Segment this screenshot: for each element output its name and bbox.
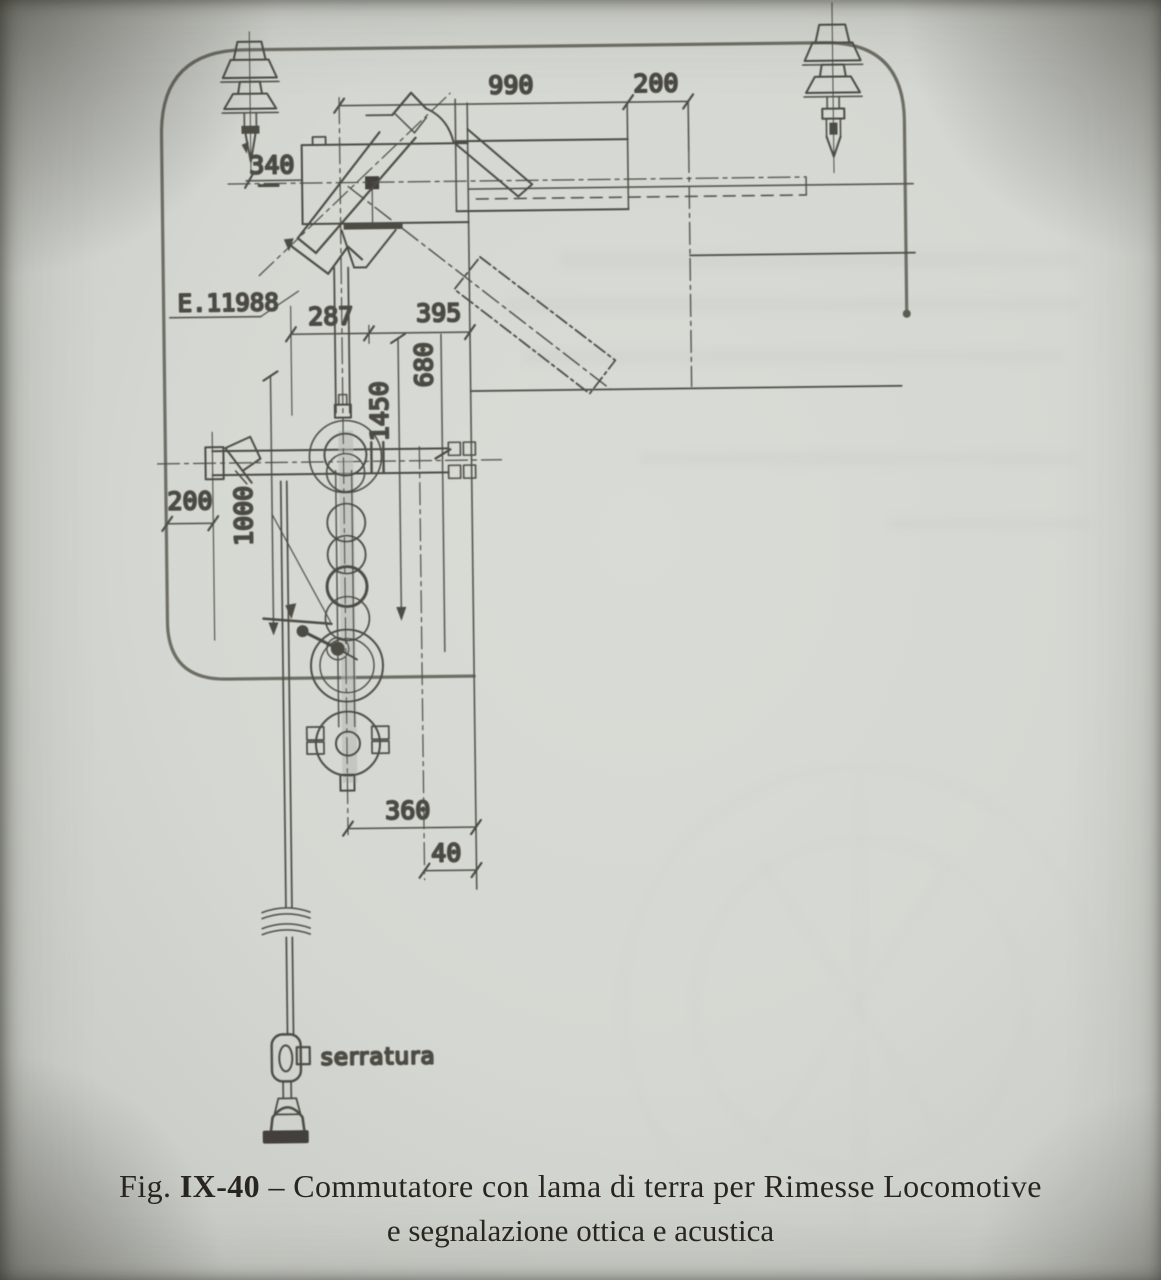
- page-bleed-ghost: [505, 252, 1098, 1243]
- blade-closed: [257, 91, 533, 275]
- dim-label-1450: 1450: [365, 381, 395, 442]
- caption-figure-number: IX-40: [180, 1168, 260, 1204]
- dim-1450: 1450: [364, 334, 409, 621]
- lock-serratura: serratura: [272, 1033, 436, 1082]
- dim-40: 40: [419, 838, 481, 878]
- dim-340: 340: [245, 150, 301, 188]
- caption-title: Commutatore con lama di terra per Rimess…: [293, 1168, 1042, 1204]
- insulator-right: [802, 2, 864, 173]
- dim-label-680: 680: [409, 342, 439, 388]
- support-bracket: [283, 135, 470, 274]
- dim-label-360: 360: [385, 796, 431, 826]
- caption-line-2: e segnalazione ottica e acustica: [0, 1213, 1161, 1249]
- drawing-ink: 990 200 340: [152, 2, 926, 1145]
- vertical-reference-lines: [415, 103, 477, 890]
- blade-tip: [392, 93, 426, 115]
- dim-680: 680: [409, 334, 453, 651]
- lock-label: serratura: [321, 1044, 436, 1071]
- ref-label: E.11988: [177, 288, 278, 317]
- dim-label-287: 287: [308, 302, 354, 332]
- figure-caption: Fig. IX-40 – Commutatore con lama di ter…: [0, 1168, 1161, 1249]
- ground-handle: [262, 1081, 309, 1144]
- frame-extension-lines: [469, 253, 917, 391]
- linkage-arrow-icon: [284, 238, 294, 251]
- operating-rod-vertical: [257, 481, 312, 1035]
- dim-360: 360: [343, 795, 481, 836]
- dim-label-395: 395: [416, 298, 462, 328]
- dim-label-200-left: 200: [167, 486, 213, 516]
- figure-drawing: 990 200 340: [0, 0, 1161, 1280]
- blade-open-phantom: [348, 183, 616, 396]
- dim-label-340: 340: [249, 150, 295, 180]
- rod-break-marks: [262, 908, 310, 935]
- dim-label-1000: 1000: [229, 486, 259, 547]
- scanned-book-page: 990 200 340: [0, 0, 1161, 1280]
- rod-handle: [225, 437, 260, 471]
- caption-separator: –: [260, 1168, 293, 1204]
- dim-label-200-top: 200: [633, 69, 679, 99]
- caption-line-1: Fig. IX-40 – Commutatore con lama di ter…: [0, 1168, 1161, 1205]
- dim-1000: 1000: [227, 371, 280, 636]
- ref-e11988: E.11988: [169, 288, 298, 318]
- caption-prefix: Fig.: [119, 1168, 180, 1204]
- dim-label-990: 990: [488, 70, 534, 100]
- dim-top: 990 200: [334, 68, 697, 390]
- dim-label-40: 40: [431, 838, 461, 867]
